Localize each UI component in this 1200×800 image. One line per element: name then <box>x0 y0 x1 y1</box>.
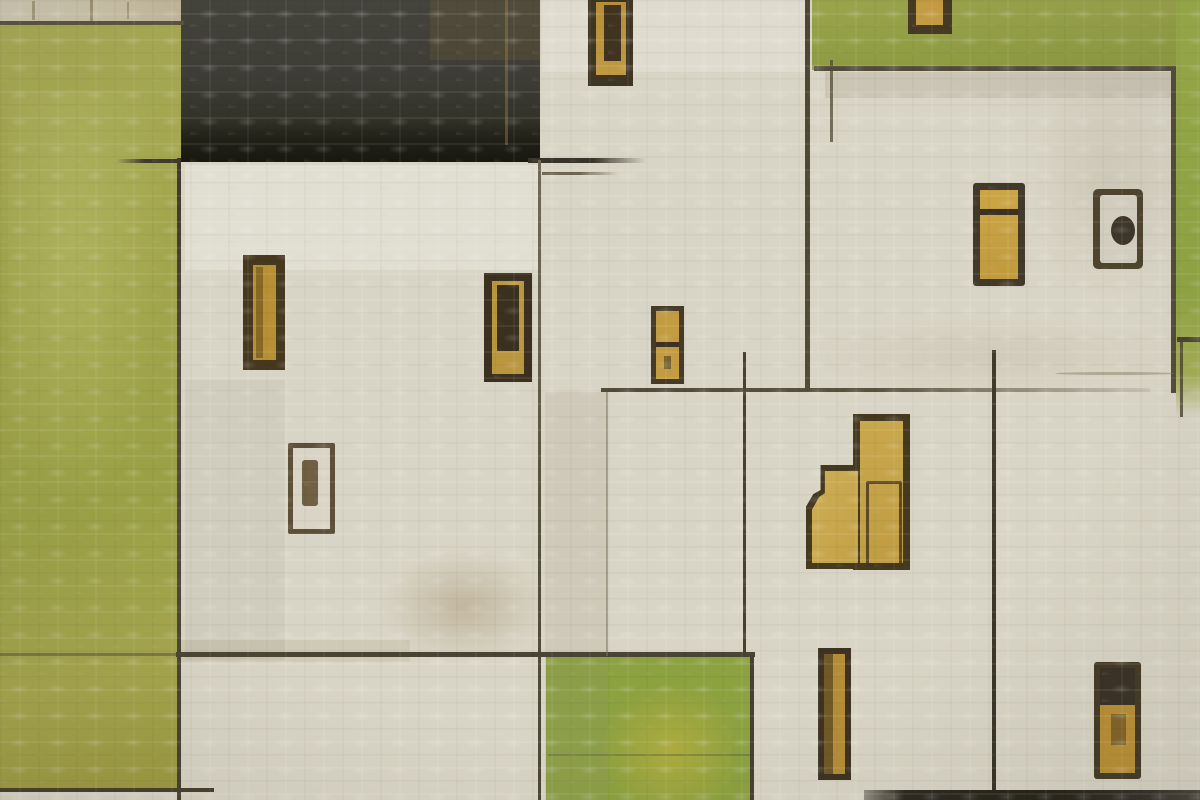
window-4-dot <box>1111 216 1135 245</box>
line-right-house-top <box>814 66 1176 71</box>
line-vertical-806 <box>805 0 810 391</box>
window-7-inner-dark <box>497 285 519 351</box>
line-right-house-edge <box>1171 66 1176 393</box>
stain-white-under-roof <box>185 165 540 270</box>
window-5-streak <box>256 267 263 358</box>
stain-left-house-grey <box>185 380 285 660</box>
wall-mark-1 <box>32 1 35 20</box>
line-horizontal-390 <box>601 388 1150 392</box>
wall-mark-2 <box>90 0 93 21</box>
line-bottom-left <box>0 788 214 792</box>
line-roof-tick-left <box>116 159 180 163</box>
line-green-block-right-edge <box>750 655 754 800</box>
door-left-part-glass <box>812 471 858 563</box>
line-left-house-edge <box>177 158 181 800</box>
window-3-glass <box>980 190 1018 279</box>
wall-mark-3 <box>127 2 129 19</box>
window-2-glass <box>916 0 943 25</box>
line-vertical-745 <box>743 352 746 657</box>
window-11-speckle <box>1111 714 1126 745</box>
green-field-top-right <box>812 0 1178 70</box>
roof-dark-band <box>181 120 540 162</box>
window-8-divider <box>656 342 679 347</box>
line-roof-tick-right <box>528 158 646 163</box>
green-field-left-highlight <box>8 90 170 520</box>
green-bottom-yellow-blotch <box>598 678 732 800</box>
line-mid-vertical <box>538 160 541 800</box>
line-roof-tick-right-2 <box>542 172 618 175</box>
line-right-house-bottom-curve <box>1055 372 1175 375</box>
painting-shapes-layer <box>0 0 1200 800</box>
stain-column-shade-mid <box>545 392 607 800</box>
line-stroke-833 <box>830 60 833 142</box>
line-wall-strip-bottom <box>0 21 184 25</box>
line-vertical-1181 <box>1180 341 1183 417</box>
stain-bright-top-mid <box>542 0 807 72</box>
roof-gold-fleck <box>505 0 508 145</box>
line-faint-vertical-608 <box>606 391 608 656</box>
line-horizontal-655 <box>176 652 755 657</box>
roof-brown-tinge <box>430 0 540 60</box>
window-11-glass-top <box>1100 668 1135 705</box>
window-3-divider <box>980 209 1018 215</box>
window-8-mark <box>664 356 671 369</box>
window-6-mark <box>302 460 318 506</box>
window-10-left-band <box>824 654 833 774</box>
bottom-dark-strip <box>864 790 1200 800</box>
painting-canvas <box>0 0 1200 800</box>
line-horizontal-655-left <box>0 653 178 656</box>
window-1-inner-dark <box>604 5 621 61</box>
door-panel-outline <box>866 481 902 567</box>
line-vertical-995 <box>992 350 996 795</box>
